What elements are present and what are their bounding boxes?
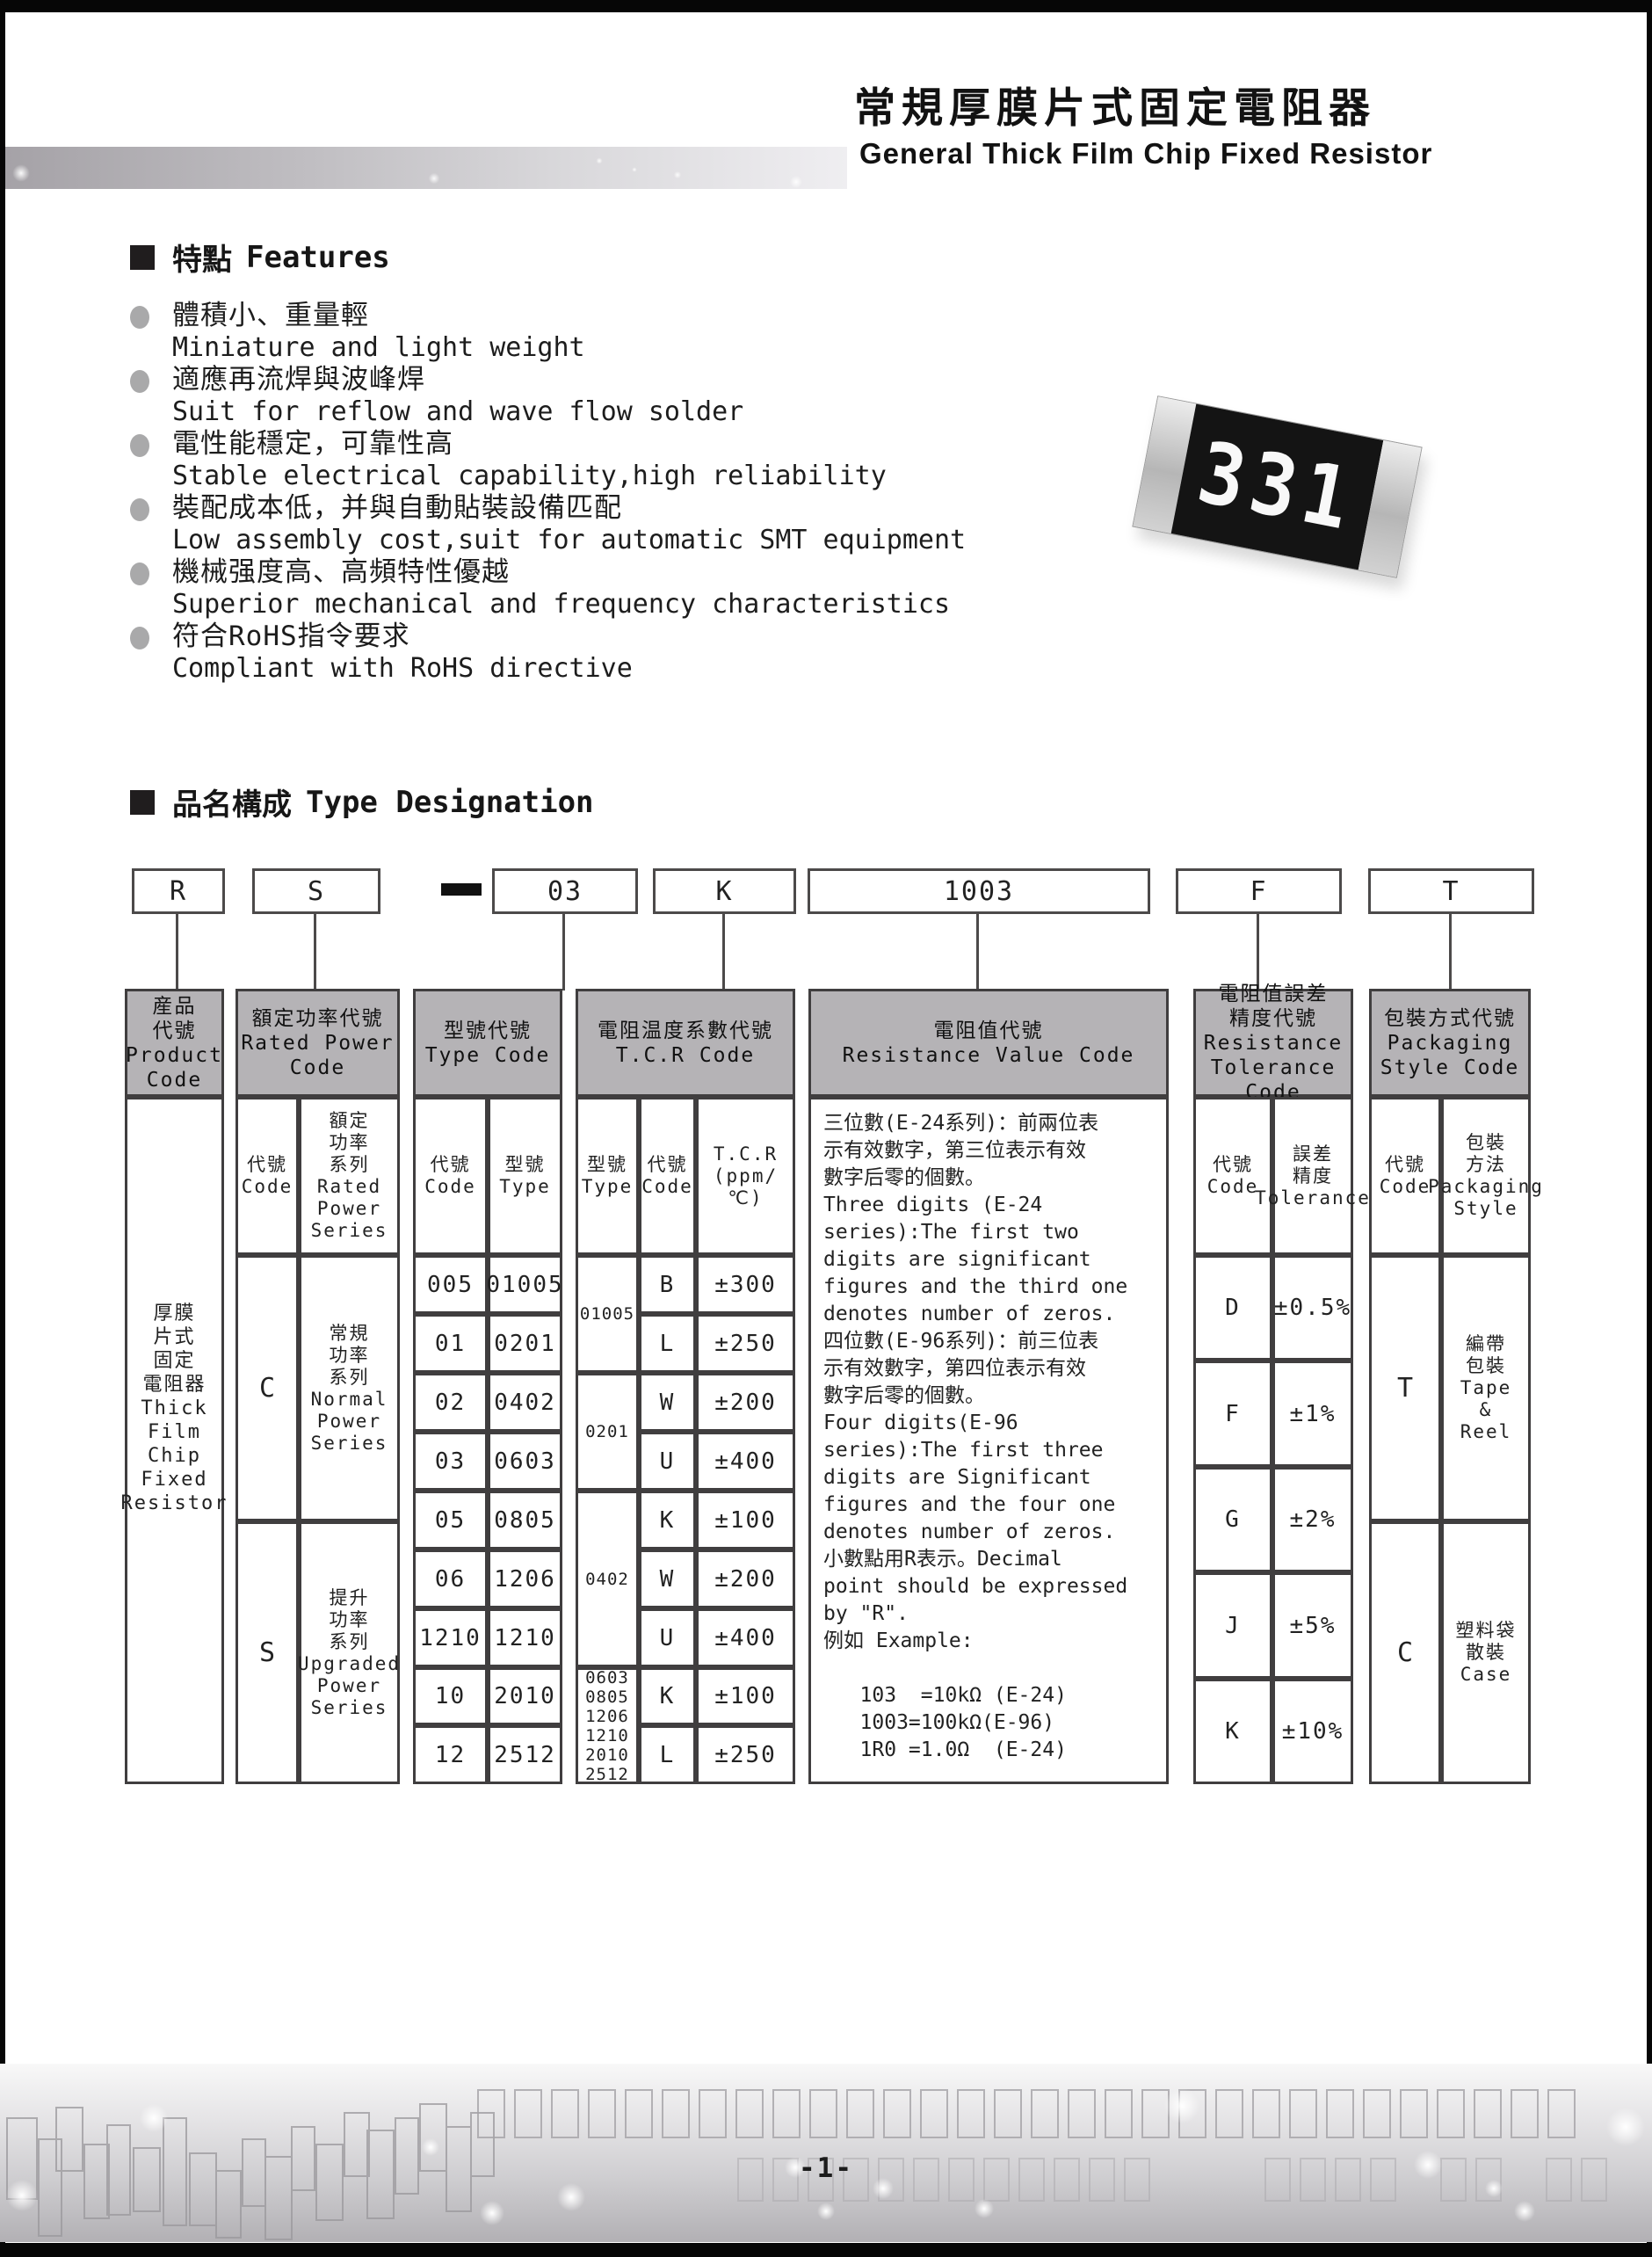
type-value-cell: 1206 (488, 1549, 562, 1608)
rated-power-series-cell: 常規 功率 系列 Normal Power Series (299, 1255, 400, 1521)
connector-line (314, 912, 316, 991)
code-box-product: R (132, 868, 225, 914)
connector-line (722, 912, 725, 991)
tcr-value-cell: ±300 (696, 1255, 795, 1314)
feature-item: 適應再流焊與波峰焊 Suit for reflow and wave flow … (130, 364, 991, 428)
tolerance-code-cell: K (1193, 1679, 1272, 1784)
features-heading-cn: 特點 (172, 236, 232, 279)
tolerance-value-cell: ±10% (1272, 1679, 1353, 1784)
tolerance-value-cell: ±0.5% (1272, 1255, 1353, 1361)
tcr-value-cell: ±200 (696, 1549, 795, 1608)
type-code-cell: 10 (413, 1667, 488, 1725)
rated-power-subheader-code: 代號 Code (235, 1097, 299, 1255)
chip-body: 331 (1171, 404, 1384, 570)
tcr-code-cell: W (639, 1549, 696, 1608)
tcr-code-cell: B (639, 1255, 696, 1314)
code-box-power: S (252, 868, 380, 914)
page-number: -1- (0, 2152, 1652, 2184)
tcr-value-cell: ±100 (696, 1667, 795, 1725)
chip-marking: 331 (1191, 424, 1364, 550)
feature-cn: 適應再流焊與波峰焊 (172, 364, 991, 396)
column-header-resistance-value: 電阻值代號 Resistance Value Code (808, 989, 1169, 1097)
feature-cn: 裝配成本低，并與自動貼裝設備匹配 (172, 492, 991, 525)
tolerance-value-cell: ±2% (1272, 1467, 1353, 1572)
features-heading-en: Features (246, 240, 390, 275)
tcr-type-group: 0402 (576, 1491, 639, 1667)
bullet-icon (130, 370, 149, 393)
feature-en: Compliant with RoHS directive (172, 653, 991, 685)
tcr-value-cell: ±400 (696, 1608, 795, 1667)
code-separator-dash (441, 883, 482, 896)
feature-cn: 機械强度高、高頻特性優越 (172, 556, 991, 589)
feature-cn: 電性能穩定，可靠性高 (172, 428, 991, 461)
tcr-type-group: 0603 0805 1206 1210 2010 2512 (576, 1667, 639, 1784)
tcr-type-group: 01005 (576, 1255, 639, 1373)
resistor-chip-image: 331 (1132, 396, 1422, 578)
header-gradient-band (5, 147, 847, 189)
column-header-tolerance: 電阻值誤差 精度代號 Resistance Tolerance Code (1193, 989, 1353, 1097)
bullet-icon (130, 306, 149, 329)
column-header-rated-power: 額定功率代號 Rated Power Code (235, 989, 400, 1097)
column-header-product: 産品 代號 Product Code (125, 989, 224, 1097)
rated-power-code-cell: C (235, 1255, 299, 1521)
resistance-value-body-cell: 三位數(E-24系列)：前兩位表 示有效數字，第三位表示有效 數字后零的個數。 … (808, 1097, 1169, 1784)
tolerance-code-cell: G (1193, 1467, 1272, 1572)
bullet-icon (130, 562, 149, 585)
packaging-subheader-style: 包裝 方法 Packaging Style (1441, 1097, 1531, 1255)
type-value-cell: 1210 (488, 1608, 562, 1667)
tcr-value-cell: ±200 (696, 1373, 795, 1432)
datasheet-page: 常規厚膜片式固定電阻器 General Thick Film Chip Fixe… (0, 0, 1652, 2257)
code-box-tolerance: F (1176, 868, 1342, 914)
feature-en: Low assembly cost,suit for automatic SMT… (172, 525, 991, 556)
feature-cn: 符合RoHS指令要求 (172, 620, 991, 653)
type-value-cell: 01005 (488, 1255, 562, 1314)
type-value-cell: 2512 (488, 1725, 562, 1784)
type-code-cell: 02 (413, 1373, 488, 1432)
packaging-code-cell: T (1369, 1255, 1441, 1521)
tcr-code-cell: L (639, 1314, 696, 1373)
feature-en: Stable electrical capability,high reliab… (172, 461, 991, 492)
section-marker-icon (130, 790, 155, 815)
tcr-value-cell: ±250 (696, 1314, 795, 1373)
connector-line (1449, 912, 1452, 991)
type-code-subheader-code: 代號 Code (413, 1097, 488, 1255)
packaging-style-cell: 塑料袋 散裝 Case (1441, 1521, 1531, 1784)
type-code-cell: 01 (413, 1314, 488, 1373)
tcr-code-cell: U (639, 1608, 696, 1667)
code-box-resistance: 1003 (808, 868, 1150, 914)
connector-line (176, 912, 178, 991)
tcr-code-cell: L (639, 1725, 696, 1784)
packaging-code-cell: C (1369, 1521, 1441, 1784)
feature-en: Miniature and light weight (172, 332, 991, 364)
type-value-cell: 0805 (488, 1491, 562, 1549)
tcr-code-cell: U (639, 1432, 696, 1491)
tcr-code-cell: K (639, 1491, 696, 1549)
feature-item: 電性能穩定，可靠性高 Stable electrical capability,… (130, 428, 991, 492)
type-value-cell: 2010 (488, 1667, 562, 1725)
type-code-cell: 1210 (413, 1608, 488, 1667)
page-title-en: General Thick Film Chip Fixed Resistor (859, 137, 1432, 171)
bullet-icon (130, 498, 149, 521)
connector-line (1257, 912, 1259, 991)
code-box-packaging: T (1368, 868, 1534, 914)
feature-cn: 體積小、重量輕 (172, 300, 991, 332)
rated-power-series-cell: 提升 功率 系列 Upgraded Power Series (299, 1521, 400, 1784)
connector-line (976, 912, 979, 991)
tolerance-code-cell: J (1193, 1572, 1272, 1679)
type-designation-heading-cn: 品名構成 (172, 780, 292, 824)
features-heading: 特點 Features (130, 236, 390, 279)
tcr-subheader-value: T.C.R (ppm/℃) (696, 1097, 795, 1255)
type-value-cell: 0603 (488, 1432, 562, 1491)
type-code-cell: 06 (413, 1549, 488, 1608)
type-code-cell: 03 (413, 1432, 488, 1491)
feature-item: 裝配成本低，并與自動貼裝設備匹配 Low assembly cost,suit … (130, 492, 991, 556)
rated-power-subheader-series: 額定 功率 系列 Rated Power Series (299, 1097, 400, 1255)
features-list: 體積小、重量輕 Miniature and light weight 適應再流焊… (130, 300, 991, 685)
packaging-style-cell: 編帶 包裝 Tape & Reel (1441, 1255, 1531, 1521)
connector-line (562, 912, 565, 991)
page-title-cn: 常規厚膜片式固定電阻器 (854, 74, 1376, 134)
page-border-top (0, 0, 1652, 12)
type-code-cell: 12 (413, 1725, 488, 1784)
page-border-left (0, 0, 5, 2257)
tcr-code-cell: K (639, 1667, 696, 1725)
type-value-cell: 0402 (488, 1373, 562, 1432)
tcr-subheader-code: 代號 Code (639, 1097, 696, 1255)
tcr-value-cell: ±250 (696, 1725, 795, 1784)
code-box-type: 03 (492, 868, 638, 914)
type-code-cell: 005 (413, 1255, 488, 1314)
column-header-tcr: 電阻温度系數代號 T.C.R Code (576, 989, 795, 1097)
bullet-icon (130, 434, 149, 457)
section-marker-icon (130, 245, 155, 270)
type-code-subheader-type: 型號 Type (488, 1097, 562, 1255)
feature-item: 機械强度高、高頻特性優越 Superior mechanical and fre… (130, 556, 991, 620)
column-header-packaging: 包裝方式代號 Packaging Style Code (1369, 989, 1531, 1097)
tolerance-code-cell: F (1193, 1361, 1272, 1467)
type-value-cell: 0201 (488, 1314, 562, 1373)
type-code-cell: 05 (413, 1491, 488, 1549)
tolerance-value-cell: ±5% (1272, 1572, 1353, 1679)
tcr-type-group: 0201 (576, 1373, 639, 1491)
bullet-icon (130, 627, 149, 650)
tolerance-code-cell: D (1193, 1255, 1272, 1361)
tcr-subheader-type: 型號 Type (576, 1097, 639, 1255)
type-designation-heading: 品名構成 Type Designation (130, 780, 594, 824)
feature-en: Superior mechanical and frequency charac… (172, 589, 991, 620)
tcr-value-cell: ±400 (696, 1432, 795, 1491)
page-border-bottom (0, 2243, 1652, 2257)
code-box-tcr: K (653, 868, 796, 914)
column-header-type-code: 型號代號 Type Code (413, 989, 562, 1097)
page-border-right (1647, 0, 1652, 2257)
product-body-cell: 厚膜 片式 固定 電阻器 Thick Film Chip Fixed Resis… (125, 1097, 224, 1784)
feature-item: 體積小、重量輕 Miniature and light weight (130, 300, 991, 364)
type-designation-heading-en: Type Designation (306, 785, 594, 820)
tolerance-subheader-value: 誤差 精度 Tolerance (1272, 1097, 1353, 1255)
feature-en: Suit for reflow and wave flow solder (172, 396, 991, 428)
tcr-value-cell: ±100 (696, 1491, 795, 1549)
rated-power-code-cell: S (235, 1521, 299, 1784)
tolerance-value-cell: ±1% (1272, 1361, 1353, 1467)
feature-item: 符合RoHS指令要求 Compliant with RoHS directive (130, 620, 991, 685)
tcr-code-cell: W (639, 1373, 696, 1432)
